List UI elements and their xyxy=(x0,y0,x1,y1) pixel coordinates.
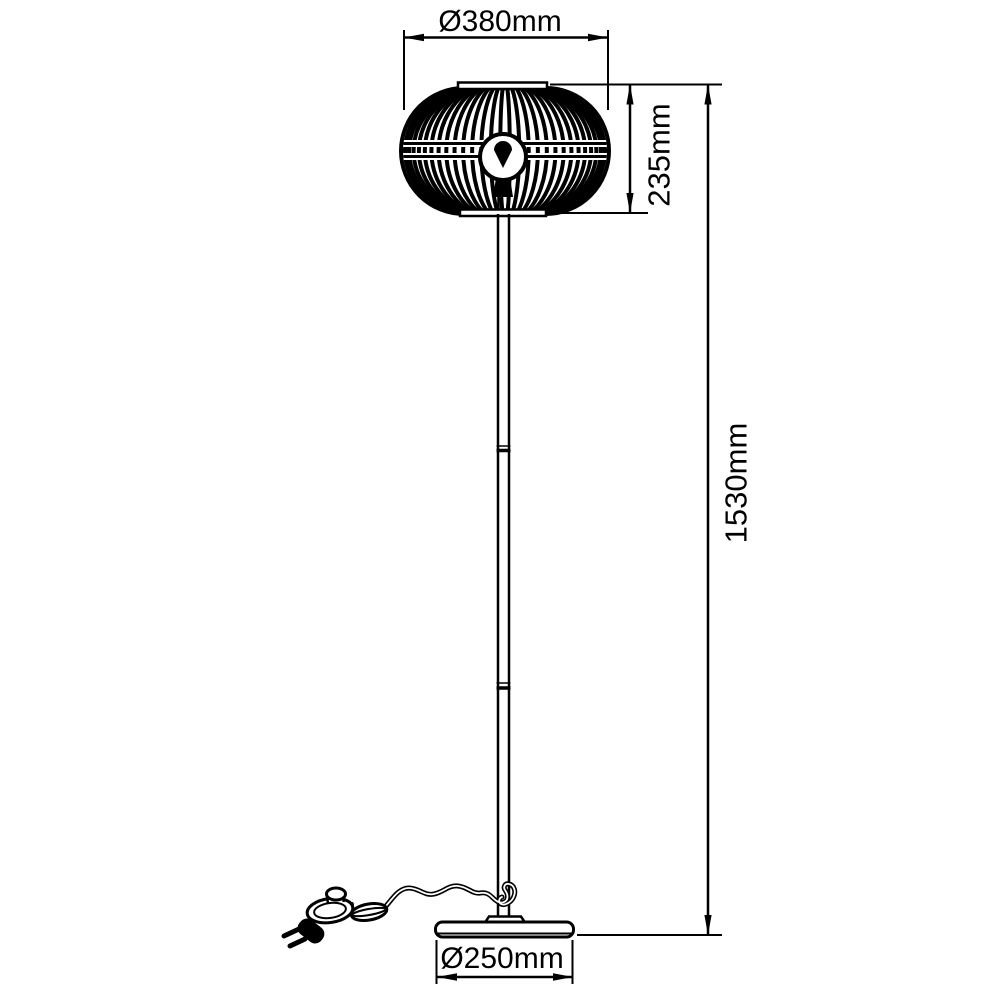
shade-diameter-label: Ø380mm xyxy=(438,5,561,38)
shade-height-label: 235mm xyxy=(642,103,677,206)
base-outline xyxy=(436,922,574,937)
shade-bottom-cap xyxy=(460,210,546,217)
lamp-base xyxy=(436,922,574,937)
dimension-base-diameter: Ø250mm xyxy=(437,940,574,984)
total-height-label: 1530mm xyxy=(719,423,754,544)
floor-lamp-dimension-diagram: Ø380mm 235mm xyxy=(0,0,1000,1000)
shade-top-cap xyxy=(458,83,547,90)
switch-knob xyxy=(327,888,346,900)
base-diameter-label: Ø250mm xyxy=(440,942,563,975)
bulb-socket xyxy=(493,178,513,197)
diagram-svg: Ø380mm 235mm xyxy=(0,0,1000,1000)
lamp-shade xyxy=(399,83,612,217)
